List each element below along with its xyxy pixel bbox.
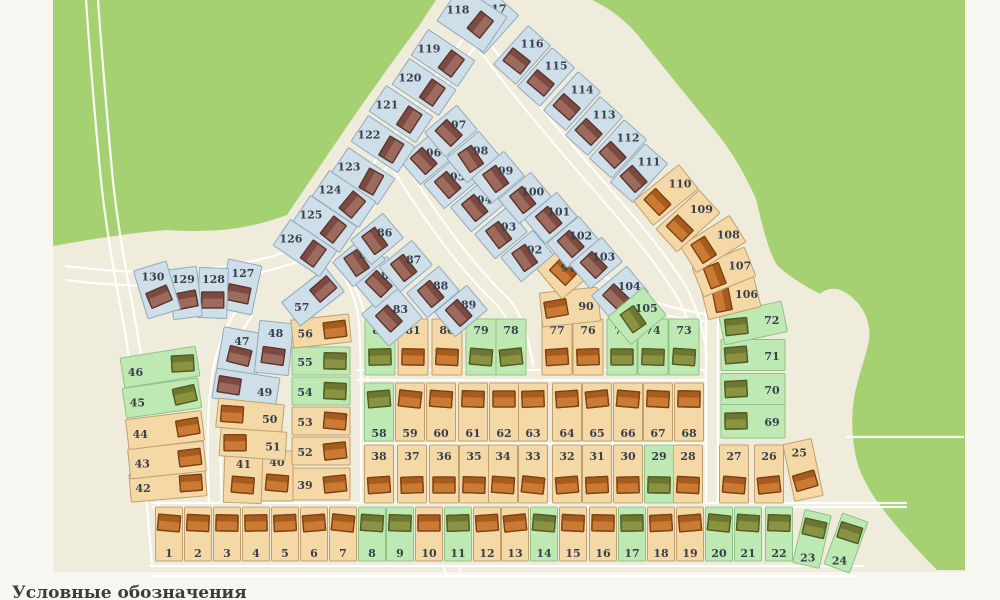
lot-number: 73 — [676, 324, 691, 337]
lot-number: 109 — [690, 203, 713, 216]
lot-number: 125 — [299, 208, 322, 221]
house-icon — [402, 349, 424, 365]
lot-number: 104 — [618, 280, 641, 293]
lot-51[interactable]: 51 — [219, 428, 287, 461]
house-icon — [323, 412, 346, 430]
house-icon — [418, 515, 440, 531]
site-plan-page: 1234567891011121314151617181920212223242… — [0, 0, 1000, 600]
house-icon — [360, 514, 383, 531]
lot-number: 12 — [479, 547, 494, 560]
house-icon — [433, 477, 455, 493]
house-icon — [768, 515, 791, 532]
lot-number: 69 — [764, 416, 779, 429]
lot-number: 39 — [297, 479, 312, 492]
lot-28[interactable]: 28 — [674, 445, 703, 503]
house-icon — [522, 391, 545, 408]
lot-number: 76 — [580, 324, 596, 337]
lot-number: 71 — [764, 350, 779, 363]
lot-number: 8 — [368, 547, 376, 560]
lot-30[interactable]: 30 — [614, 445, 643, 503]
lot-60[interactable]: 60 — [427, 383, 456, 441]
house-icon — [178, 448, 202, 467]
house-icon — [544, 299, 568, 319]
house-icon — [171, 355, 194, 372]
house-icon — [611, 349, 633, 365]
house-icon — [648, 477, 670, 493]
lot-79[interactable]: 79 — [466, 319, 496, 375]
lot-number: 57 — [294, 301, 309, 314]
lot-number: 3 — [223, 547, 231, 560]
lot-number: 15 — [565, 547, 580, 560]
lot-number: 43 — [135, 457, 150, 470]
lot-number: 68 — [681, 427, 697, 440]
lot-number: 6 — [310, 547, 318, 560]
lot-3[interactable]: 3 — [214, 507, 241, 561]
house-icon — [585, 390, 609, 408]
lot-number: 7 — [339, 547, 347, 560]
lot-54[interactable]: 54 — [292, 377, 350, 405]
house-icon — [323, 320, 347, 339]
lot-number: 4 — [252, 547, 260, 560]
house-icon — [677, 476, 700, 493]
lot-number: 127 — [231, 267, 254, 280]
lot-number: 122 — [357, 128, 380, 141]
lot-71[interactable]: 71 — [721, 340, 785, 371]
lot-26[interactable]: 26 — [755, 445, 784, 503]
lot-32[interactable]: 32 — [553, 445, 582, 503]
lot-number: 30 — [620, 450, 636, 463]
lot-number: 5 — [281, 547, 289, 560]
lot-number: 111 — [638, 156, 661, 169]
lot-15[interactable]: 15 — [560, 507, 587, 561]
lot-62[interactable]: 62 — [490, 383, 519, 441]
lot-number: 14 — [536, 547, 552, 560]
lot-11[interactable]: 11 — [445, 507, 472, 561]
house-icon — [475, 514, 498, 531]
lot-59[interactable]: 59 — [396, 383, 425, 441]
lot-39[interactable]: 39 — [292, 468, 350, 500]
house-icon — [736, 514, 759, 531]
house-icon — [545, 348, 568, 365]
lot-7[interactable]: 7 — [330, 507, 357, 561]
house-icon — [369, 349, 391, 365]
lot-90[interactable]: 90 — [539, 287, 600, 327]
house-icon — [616, 390, 639, 408]
lot-number: 11 — [450, 547, 465, 560]
lot-number: 105 — [635, 302, 658, 315]
lot-number: 128 — [202, 273, 225, 286]
lot-76[interactable]: 76 — [573, 319, 603, 375]
house-icon — [401, 477, 424, 494]
house-icon — [302, 514, 325, 532]
lot-number: 99 — [498, 164, 513, 177]
house-icon — [367, 476, 390, 493]
house-icon — [707, 514, 731, 532]
lot-number: 106 — [735, 288, 758, 301]
lot-53[interactable]: 53 — [292, 407, 350, 435]
lot-35[interactable]: 35 — [460, 445, 489, 503]
house-icon — [725, 317, 749, 335]
lot-5[interactable]: 5 — [272, 507, 299, 561]
house-icon — [179, 474, 202, 491]
lot-number: 47 — [234, 335, 249, 348]
lot-13[interactable]: 13 — [502, 507, 529, 561]
lot-number: 64 — [559, 427, 575, 440]
lot-number: 114 — [571, 84, 594, 97]
house-icon — [725, 380, 748, 397]
lot-52[interactable]: 52 — [292, 437, 350, 465]
house-icon — [245, 515, 267, 531]
lot-number: 119 — [417, 42, 440, 55]
lot-number: 93 — [501, 220, 516, 233]
lot-number: 35 — [466, 450, 481, 463]
house-icon — [224, 435, 246, 451]
house-icon — [436, 348, 459, 365]
lot-70[interactable]: 70 — [721, 374, 785, 405]
house-icon — [678, 514, 701, 532]
lot-number: 103 — [592, 250, 615, 263]
house-icon — [672, 348, 695, 365]
lot-number: 98 — [473, 144, 489, 157]
lot-34[interactable]: 34 — [489, 445, 518, 503]
lot-number: 126 — [279, 232, 302, 245]
lot-37[interactable]: 37 — [398, 445, 427, 503]
lot-number: 25 — [792, 446, 807, 459]
lot-number: 18 — [653, 547, 669, 560]
house-icon — [221, 405, 244, 422]
house-icon — [491, 476, 514, 493]
lot-number: 100 — [521, 185, 544, 198]
lot-number: 29 — [651, 450, 666, 463]
lot-number: 54 — [297, 386, 313, 399]
house-icon — [555, 390, 578, 407]
lot-number: 124 — [318, 183, 341, 196]
lot-number: 28 — [680, 450, 696, 463]
lot-number: 9 — [396, 547, 404, 560]
lot-number: 79 — [473, 324, 488, 337]
house-icon — [469, 348, 492, 366]
house-icon — [274, 514, 297, 531]
lot-number: 44 — [133, 428, 149, 441]
lot-number: 101 — [547, 205, 570, 218]
house-icon — [725, 413, 747, 429]
lot-number: 83 — [393, 303, 408, 316]
lot-number: 52 — [297, 446, 312, 459]
lot-41[interactable]: 41 — [223, 452, 263, 503]
lot-number: 31 — [589, 450, 604, 463]
lot-78[interactable]: 78 — [496, 319, 526, 375]
lot-number: 20 — [711, 547, 727, 560]
lot-number: 27 — [726, 450, 741, 463]
lot-number: 22 — [771, 547, 786, 560]
lot-number: 55 — [297, 356, 312, 369]
legend-title: Условные обозначения — [12, 583, 247, 600]
lot-number: 2 — [194, 547, 202, 560]
house-icon — [647, 390, 670, 407]
lot-36[interactable]: 36 — [430, 445, 459, 503]
lot-58[interactable]: 58 — [365, 383, 394, 441]
lot-number: 86 — [377, 226, 393, 239]
lot-number: 38 — [371, 450, 387, 463]
lot-number: 63 — [525, 427, 540, 440]
lot-number: 107 — [728, 259, 751, 272]
lot-number: 23 — [800, 551, 815, 564]
lot-12[interactable]: 12 — [474, 507, 501, 561]
house-icon — [398, 390, 422, 408]
lot-number: 21 — [740, 547, 755, 560]
lot-number: 45 — [130, 396, 145, 409]
lot-number: 42 — [136, 482, 151, 495]
lot-17[interactable]: 17 — [619, 507, 646, 561]
house-icon — [323, 475, 347, 493]
lot-number: 90 — [578, 300, 594, 313]
lot-number: 34 — [495, 450, 511, 463]
lot-48[interactable]: 48 — [254, 320, 293, 375]
house-icon — [493, 391, 515, 407]
lot-number: 16 — [595, 547, 611, 560]
lot-10[interactable]: 10 — [416, 507, 443, 561]
house-icon — [562, 514, 585, 531]
lot-number: 61 — [465, 427, 480, 440]
house-icon — [586, 476, 609, 493]
house-icon — [157, 514, 180, 532]
lot-22[interactable]: 22 — [766, 507, 793, 561]
house-icon — [555, 476, 578, 494]
lot-number: 51 — [265, 440, 280, 453]
house-icon — [521, 476, 545, 494]
lot-number: 59 — [402, 427, 417, 440]
lot-6[interactable]: 6 — [301, 507, 328, 561]
house-icon — [617, 477, 639, 493]
lot-66[interactable]: 66 — [614, 383, 643, 441]
lot-number: 88 — [433, 279, 449, 292]
lot-number: 123 — [337, 160, 360, 173]
lot-9[interactable]: 9 — [387, 507, 414, 561]
house-icon — [463, 477, 486, 494]
lot-number: 92 — [527, 243, 542, 256]
house-icon — [202, 292, 224, 308]
lot-64[interactable]: 64 — [553, 383, 582, 441]
lot-55[interactable]: 55 — [292, 347, 350, 375]
lot-number: 65 — [589, 427, 604, 440]
house-icon — [176, 417, 200, 437]
lot-4[interactable]: 4 — [243, 507, 270, 561]
lot-number: 89 — [461, 298, 476, 311]
lot-number: 19 — [682, 547, 697, 560]
lot-31[interactable]: 31 — [583, 445, 612, 503]
lot-number: 13 — [507, 547, 522, 560]
lot-number: 46 — [128, 366, 144, 379]
house-icon — [650, 514, 673, 531]
lot-18[interactable]: 18 — [648, 507, 675, 561]
lot-number: 66 — [620, 427, 636, 440]
house-icon — [447, 515, 470, 532]
lot-number: 70 — [764, 384, 780, 397]
lot-number: 116 — [521, 38, 544, 51]
lot-number: 49 — [257, 386, 272, 399]
house-icon — [592, 515, 614, 531]
lot-number: 56 — [298, 328, 314, 341]
house-icon — [429, 390, 452, 407]
lot-61[interactable]: 61 — [459, 383, 488, 441]
lot-number: 24 — [832, 555, 848, 568]
lot-number: 17 — [624, 547, 639, 560]
lot-14[interactable]: 14 — [531, 507, 558, 561]
lot-number: 108 — [717, 228, 740, 241]
lot-number: 37 — [404, 450, 419, 463]
lot-number: 48 — [268, 327, 284, 340]
lot-8[interactable]: 8 — [359, 507, 386, 561]
house-icon — [577, 349, 600, 366]
lot-number: 121 — [375, 98, 398, 111]
house-icon — [216, 515, 238, 531]
house-icon — [503, 514, 527, 532]
lot-69[interactable]: 69 — [721, 404, 785, 438]
lot-number: 32 — [559, 450, 574, 463]
house-icon — [187, 514, 210, 531]
lot-number: 62 — [496, 427, 511, 440]
lot-number: 10 — [421, 547, 437, 560]
house-icon — [462, 391, 485, 408]
lot-77[interactable]: 77 — [542, 319, 572, 375]
house-icon — [367, 390, 390, 408]
house-icon — [217, 376, 241, 395]
lot-number: 97 — [451, 118, 466, 131]
lot-number: 78 — [503, 324, 519, 337]
lot-number: 118 — [446, 3, 469, 16]
site-plan-map: 1234567891011121314151617181920212223242… — [0, 0, 1000, 600]
house-icon — [331, 514, 355, 532]
lot-number: 53 — [297, 416, 312, 429]
lot-1[interactable]: 1 — [156, 507, 183, 561]
house-icon — [231, 476, 254, 494]
house-icon — [722, 476, 745, 494]
lot-73[interactable]: 73 — [669, 319, 699, 375]
lot-number: 130 — [141, 270, 164, 283]
lot-2[interactable]: 2 — [185, 507, 212, 561]
house-icon — [261, 347, 285, 366]
house-icon — [532, 514, 555, 532]
lot-number: 72 — [764, 314, 779, 327]
lot-16[interactable]: 16 — [590, 507, 617, 561]
lot-number: 33 — [525, 450, 540, 463]
lot-number: 112 — [617, 132, 640, 145]
lot-65[interactable]: 65 — [583, 383, 612, 441]
lot-38[interactable]: 38 — [365, 445, 394, 503]
lot-number: 115 — [545, 60, 568, 73]
lot-27[interactable]: 27 — [720, 445, 749, 503]
lot-number: 102 — [569, 229, 592, 242]
house-icon — [324, 382, 347, 399]
house-icon — [642, 349, 665, 366]
house-icon — [621, 515, 643, 531]
lot-number: 120 — [398, 71, 421, 84]
lot-21[interactable]: 21 — [735, 507, 762, 561]
lot-number: 58 — [371, 427, 387, 440]
lot-20[interactable]: 20 — [706, 507, 733, 561]
lot-number: 41 — [236, 458, 251, 471]
lot-number: 113 — [593, 109, 616, 122]
lot-number: 60 — [433, 427, 449, 440]
house-icon — [724, 346, 747, 364]
house-icon — [265, 474, 288, 492]
lot-68[interactable]: 68 — [675, 383, 704, 441]
lot-number: 26 — [761, 450, 777, 463]
house-icon — [499, 348, 523, 366]
lot-number: 1 — [165, 547, 173, 560]
lot-number: 87 — [406, 253, 421, 266]
lot-number: 36 — [436, 450, 452, 463]
lot-number: 67 — [650, 427, 665, 440]
lot-number: 50 — [262, 413, 278, 426]
lot-19[interactable]: 19 — [677, 507, 704, 561]
lot-67[interactable]: 67 — [644, 383, 673, 441]
house-icon — [324, 353, 346, 369]
lot-number: 129 — [172, 273, 195, 286]
house-icon — [678, 391, 700, 407]
lot-29[interactable]: 29 — [645, 445, 674, 503]
lot-33[interactable]: 33 — [519, 445, 548, 503]
house-icon — [757, 476, 781, 494]
lot-63[interactable]: 63 — [519, 383, 548, 441]
house-icon — [389, 515, 412, 532]
lot-number: 110 — [669, 178, 692, 191]
house-icon — [323, 442, 347, 460]
